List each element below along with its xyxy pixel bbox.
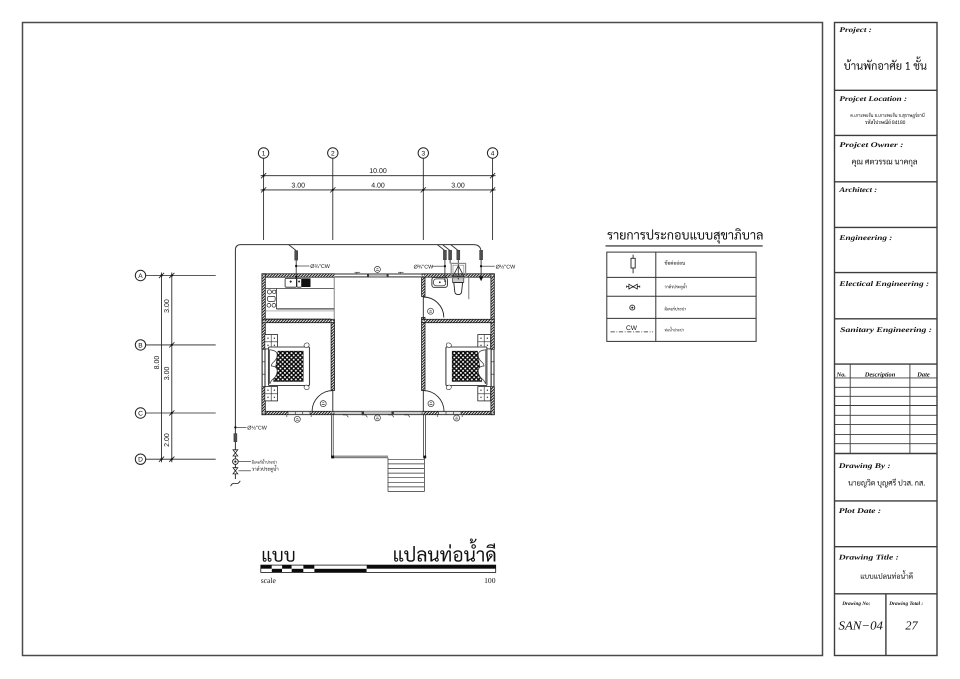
svg-text:27: 27 — [905, 619, 918, 633]
svg-text:Ø½"CW: Ø½"CW — [247, 426, 267, 432]
svg-text:Sanitary Engineering :: Sanitary Engineering : — [840, 326, 932, 334]
svg-text:3.00: 3.00 — [291, 182, 305, 189]
svg-text:Ø¾"CW: Ø¾"CW — [310, 264, 330, 270]
svg-text:Drawing Title :: Drawing Title : — [837, 554, 898, 562]
svg-text:Architect :: Architect : — [838, 186, 877, 194]
svg-text:Drawing No:: Drawing No: — [841, 601, 870, 607]
svg-text:2.00: 2.00 — [164, 433, 171, 447]
svg-text:No.: No. — [836, 371, 847, 378]
svg-text:Description: Description — [864, 371, 896, 378]
svg-text:1: 1 — [262, 150, 266, 157]
svg-text:SAN−04: SAN−04 — [839, 619, 884, 633]
svg-text:4.00: 4.00 — [371, 182, 385, 189]
svg-text:3.00: 3.00 — [164, 299, 171, 313]
svg-text:3.00: 3.00 — [164, 366, 171, 380]
svg-text:Plot Date :: Plot Date : — [839, 507, 881, 515]
svg-text:Ø¾"CW: Ø¾"CW — [414, 264, 434, 270]
svg-text:4: 4 — [491, 150, 495, 157]
svg-text:CW: CW — [626, 325, 638, 332]
svg-text:Electical Engineering :: Electical Engineering : — [838, 280, 929, 288]
svg-text:3.00: 3.00 — [451, 182, 465, 189]
svg-text:8.00: 8.00 — [154, 356, 161, 370]
svg-text:10.00: 10.00 — [369, 168, 387, 175]
svg-text:D: D — [138, 457, 143, 464]
svg-text:Date: Date — [916, 371, 930, 378]
svg-text:Projcet Location :: Projcet Location : — [839, 95, 907, 103]
svg-text:Ø½"CW: Ø½"CW — [496, 264, 516, 270]
svg-text:B: B — [138, 342, 143, 349]
svg-text:Drawing Total :: Drawing Total : — [888, 601, 923, 607]
svg-text:scale: scale — [261, 576, 277, 585]
svg-text:Drawing By :: Drawing By : — [838, 462, 891, 470]
svg-text:C: C — [138, 410, 143, 417]
svg-text:Projcet Owner :: Projcet Owner : — [839, 141, 903, 149]
svg-text:100: 100 — [484, 576, 496, 585]
svg-text:3: 3 — [421, 150, 425, 157]
svg-text:Engineering :: Engineering : — [838, 234, 892, 242]
svg-text:Project :: Project : — [839, 26, 871, 34]
svg-text:A: A — [138, 273, 143, 280]
svg-text:2: 2 — [331, 150, 335, 157]
